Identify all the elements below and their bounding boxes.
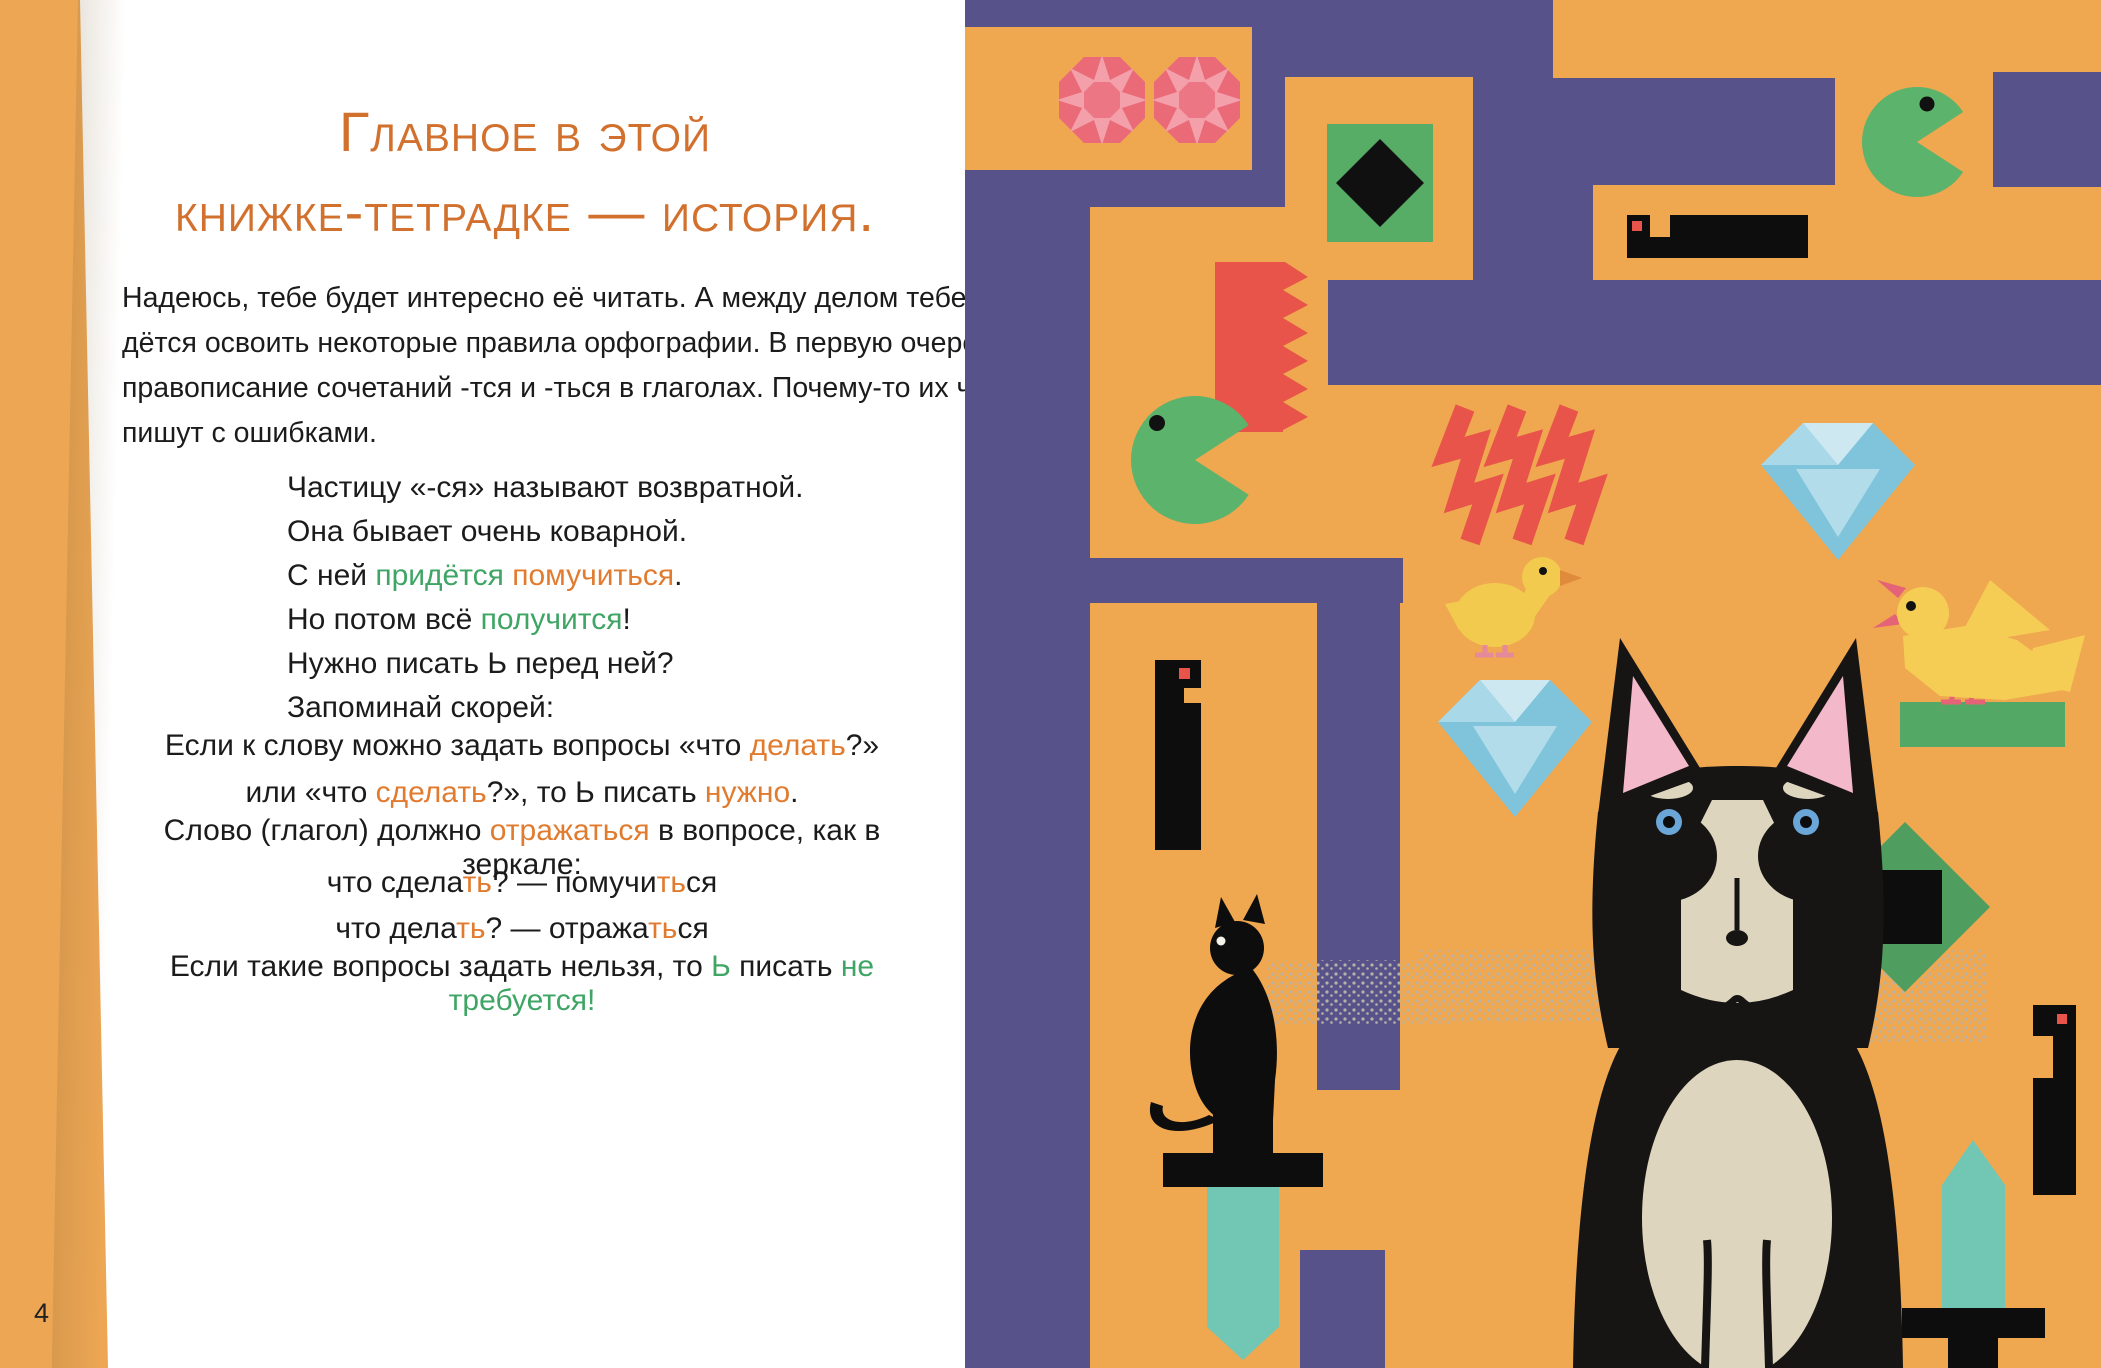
dog-leg-line xyxy=(1766,1240,1769,1368)
ruby-gem-icon xyxy=(1152,55,1242,145)
page-title-line2: книжке-тетрадке — история. xyxy=(120,172,930,252)
example-line: что сделать? — помучиться xyxy=(122,860,922,906)
page-title: Главное в этой книжке-тетрадке — история… xyxy=(120,92,930,252)
example-line: что делать? — отражаться xyxy=(122,906,922,952)
pixel-column-icon xyxy=(2033,1005,2076,1195)
dog-leg-line xyxy=(1705,1240,1708,1368)
page-number: 4 xyxy=(34,1298,49,1329)
maze-wall xyxy=(1285,0,1473,77)
rule-line: Если такие вопросы задать нельзя, то Ь п… xyxy=(122,950,922,1018)
maze-wall xyxy=(1080,170,1282,207)
maze-wall xyxy=(1300,1250,1385,1368)
verse-line: Нужно писать Ь перед ней? xyxy=(287,642,804,686)
maze-wall xyxy=(1328,280,2101,385)
dog-nose xyxy=(1726,930,1748,946)
ruby-gem-icon xyxy=(1057,55,1147,145)
sword-blade xyxy=(1207,1187,1279,1327)
book-spread: 4 Главное в этой книжке-тетрадке — истор… xyxy=(0,0,2101,1368)
rule-questions: Если к слову можно задать вопросы «что д… xyxy=(122,722,922,816)
paragraph-line: Надеюсь, тебе будет интересно её читать.… xyxy=(122,276,942,321)
rule-no-soft-sign: Если такие вопросы задать нельзя, то Ь п… xyxy=(122,950,922,1018)
maze-wall xyxy=(965,0,1285,27)
pixel-bar-icon xyxy=(1627,215,1808,258)
paragraph-line: пишут с ошибками. xyxy=(122,411,942,456)
cat-eye xyxy=(1217,937,1226,946)
dog-pupil xyxy=(1663,816,1675,828)
maze-wall xyxy=(965,170,1090,1368)
mirror-examples: что сделать? — помучиться что делать? — … xyxy=(122,860,922,952)
paragraph-line: дётся освоить некоторые правила орфограф… xyxy=(122,321,942,366)
dog-pupil xyxy=(1800,816,1812,828)
green-tile-black-diamond-icon xyxy=(1327,124,1433,242)
verse-line: Частицу «-ся» называют возвратной. xyxy=(287,466,804,510)
maze-wall xyxy=(1473,0,1553,302)
verse-block: Частицу «-ся» называют возвратной. Она б… xyxy=(287,466,804,730)
dog-chest xyxy=(1642,1060,1832,1368)
intro-paragraph: Надеюсь, тебе будет интересно её читать.… xyxy=(122,276,942,456)
verse-line: Она бывает очень коварной. xyxy=(287,510,804,554)
maze-illustration xyxy=(965,0,2101,1368)
maze-wall xyxy=(1553,183,1593,283)
pedestal-base xyxy=(1163,1153,1323,1187)
rule-line: Если к слову можно задать вопросы «что д… xyxy=(122,722,922,769)
paragraph-line: правописание сочетаний -тся и -ться в гл… xyxy=(122,366,942,411)
rule-line: или «что сделать?», то Ь писать нужно. xyxy=(122,769,922,816)
page-title-line1: Главное в этой xyxy=(120,92,930,172)
verse-line: С ней придётся помучиться. xyxy=(287,554,804,598)
pixel-column-icon xyxy=(1155,660,1201,850)
verse-line: Но потом всё получится! xyxy=(287,598,804,642)
maze-wall xyxy=(1553,78,1835,185)
maze-wall xyxy=(1993,72,2101,187)
